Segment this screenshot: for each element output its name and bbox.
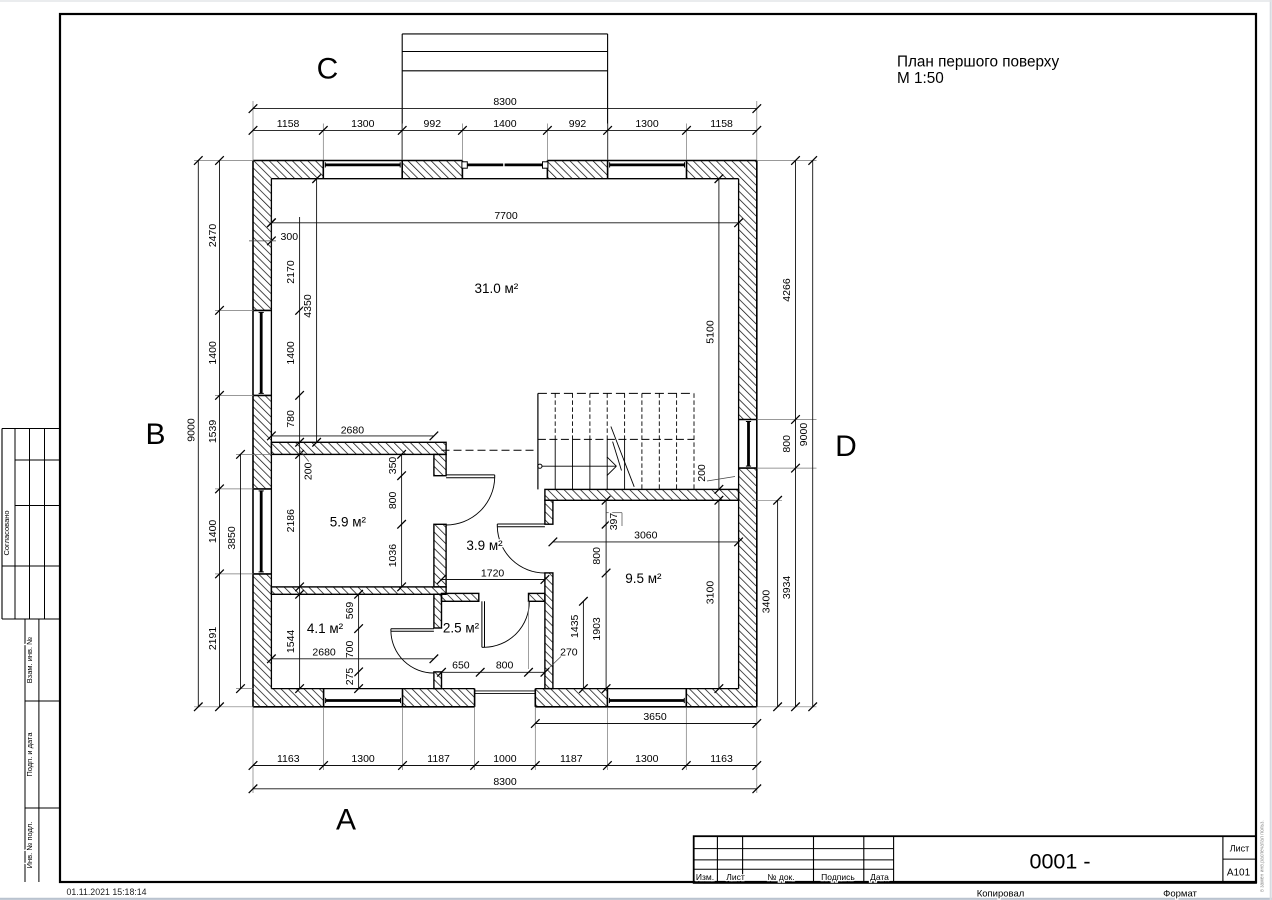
svg-text:800: 800: [591, 547, 603, 565]
svg-text:1187: 1187: [427, 753, 450, 765]
svg-text:569: 569: [344, 602, 356, 620]
svg-text:М 1:50: М 1:50: [897, 70, 944, 87]
svg-text:Копировал: Копировал: [977, 889, 1025, 900]
svg-text:1000: 1000: [493, 753, 517, 765]
svg-text:1400: 1400: [285, 341, 297, 365]
svg-text:350: 350: [387, 457, 399, 475]
svg-text:Лист: Лист: [726, 872, 745, 882]
svg-text:8300: 8300: [493, 96, 517, 108]
svg-text:31.0 м²: 31.0 м²: [474, 281, 518, 296]
svg-text:1187: 1187: [560, 753, 583, 765]
svg-text:200: 200: [696, 464, 708, 482]
svg-text:780: 780: [285, 410, 297, 428]
svg-text:8300: 8300: [493, 776, 517, 788]
svg-text:1903: 1903: [591, 617, 603, 641]
svg-text:Подпись: Подпись: [821, 872, 855, 882]
svg-text:A: A: [336, 804, 356, 837]
svg-text:1163: 1163: [710, 753, 733, 765]
svg-text:Инв. № подл.: Инв. № подл.: [25, 822, 34, 869]
svg-text:1158: 1158: [277, 118, 300, 130]
svg-text:800: 800: [387, 491, 399, 509]
svg-text:4.1 м²: 4.1 м²: [307, 621, 344, 636]
svg-text:Подп. и дата: Подп. и дата: [25, 732, 34, 777]
svg-text:200: 200: [302, 462, 314, 480]
svg-text:9000: 9000: [798, 423, 810, 447]
svg-text:0001 -: 0001 -: [1030, 850, 1091, 874]
svg-text:300: 300: [281, 231, 299, 243]
svg-text:1163: 1163: [277, 753, 300, 765]
svg-text:3400: 3400: [760, 590, 772, 614]
svg-text:2191: 2191: [207, 627, 219, 651]
svg-text:Лист: Лист: [1230, 844, 1250, 854]
svg-text:1435: 1435: [569, 614, 581, 638]
svg-text:Дата: Дата: [870, 872, 889, 882]
svg-text:800: 800: [496, 660, 514, 672]
svg-text:B: B: [145, 418, 165, 451]
svg-text:700: 700: [344, 640, 356, 658]
svg-text:3650: 3650: [643, 711, 667, 723]
svg-text:2680: 2680: [312, 646, 336, 658]
svg-text:9000: 9000: [186, 418, 198, 442]
svg-text:1158: 1158: [710, 118, 733, 130]
svg-text:9.5 м²: 9.5 м²: [625, 571, 662, 586]
svg-text:Взам. инв. №: Взам. инв. №: [25, 637, 34, 683]
svg-text:Изм.: Изм.: [696, 872, 714, 882]
svg-text:3060: 3060: [634, 529, 658, 541]
svg-text:2470: 2470: [207, 224, 219, 248]
svg-text:2170: 2170: [285, 260, 297, 284]
svg-text:7700: 7700: [494, 210, 518, 222]
svg-text:3.9 м²: 3.9 м²: [466, 538, 503, 553]
svg-text:2186: 2186: [285, 509, 297, 533]
svg-text:1036: 1036: [387, 544, 399, 568]
svg-text:1544: 1544: [285, 630, 297, 654]
svg-text:План першого поверху: План першого поверху: [897, 54, 1059, 71]
svg-text:А101: А101: [1227, 868, 1251, 879]
svg-text:в замен инв.распечатал польз.: в замен инв.распечатал польз.: [1260, 820, 1266, 892]
svg-text:1539: 1539: [207, 420, 219, 444]
svg-text:800: 800: [781, 435, 793, 453]
svg-text:1300: 1300: [351, 753, 375, 765]
svg-text:3850: 3850: [226, 526, 238, 550]
svg-text:275: 275: [344, 668, 356, 686]
svg-text:Формат: Формат: [1163, 889, 1197, 900]
svg-text:1400: 1400: [207, 520, 219, 544]
svg-text:5.9 м²: 5.9 м²: [330, 514, 367, 529]
svg-text:1400: 1400: [207, 341, 219, 365]
svg-text:2.5 м²: 2.5 м²: [443, 620, 480, 635]
svg-text:992: 992: [569, 118, 587, 130]
svg-text:1300: 1300: [635, 118, 659, 130]
svg-text:D: D: [835, 430, 857, 463]
svg-text:1300: 1300: [351, 118, 375, 130]
svg-text:C: C: [317, 53, 339, 86]
svg-text:2680: 2680: [341, 424, 365, 436]
svg-text:3934: 3934: [781, 576, 793, 600]
svg-text:Согласовано: Согласовано: [2, 510, 11, 555]
svg-text:1720: 1720: [481, 567, 505, 579]
svg-text:1300: 1300: [635, 753, 659, 765]
svg-text:650: 650: [452, 660, 470, 672]
svg-text:4266: 4266: [781, 278, 793, 302]
svg-text:397: 397: [608, 513, 620, 531]
svg-text:01.11.2021 15:18:14: 01.11.2021 15:18:14: [67, 887, 147, 897]
svg-text:№ док.: № док.: [767, 872, 794, 882]
svg-text:1400: 1400: [493, 118, 517, 130]
svg-text:992: 992: [424, 118, 442, 130]
svg-text:4350: 4350: [302, 294, 314, 318]
svg-text:3100: 3100: [704, 581, 716, 605]
svg-text:5100: 5100: [704, 320, 716, 344]
svg-text:270: 270: [560, 646, 578, 658]
